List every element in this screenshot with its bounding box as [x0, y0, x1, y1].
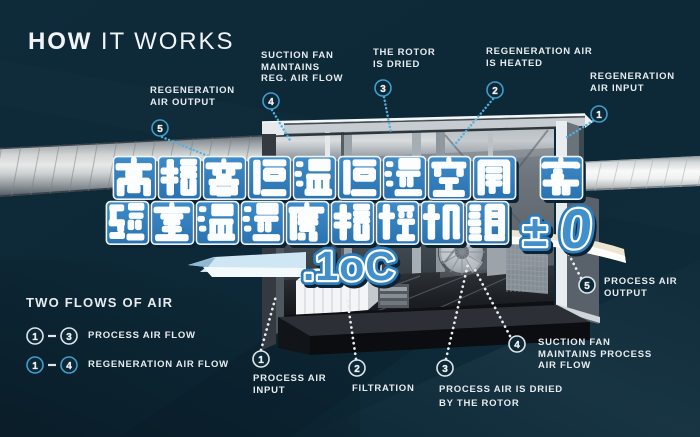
svg-text:0: 0 — [558, 197, 596, 260]
svg-text:2: 2 — [492, 86, 498, 97]
svg-text:1: 1 — [596, 110, 602, 121]
svg-text:3: 3 — [442, 364, 448, 375]
svg-text:4: 4 — [268, 97, 274, 108]
svg-text:5: 5 — [157, 124, 163, 135]
svg-text:1: 1 — [258, 355, 264, 366]
svg-text:.1oC: .1oC — [303, 243, 396, 289]
svg-text:3: 3 — [380, 84, 386, 95]
svg-text:4: 4 — [514, 340, 520, 351]
svg-text:4: 4 — [66, 361, 72, 372]
svg-text:±: ± — [523, 207, 547, 256]
svg-text:1: 1 — [32, 361, 38, 372]
svg-text:3: 3 — [66, 332, 72, 343]
svg-text:2: 2 — [354, 364, 360, 375]
svg-text:5: 5 — [584, 281, 590, 292]
svg-text:1: 1 — [32, 332, 38, 343]
